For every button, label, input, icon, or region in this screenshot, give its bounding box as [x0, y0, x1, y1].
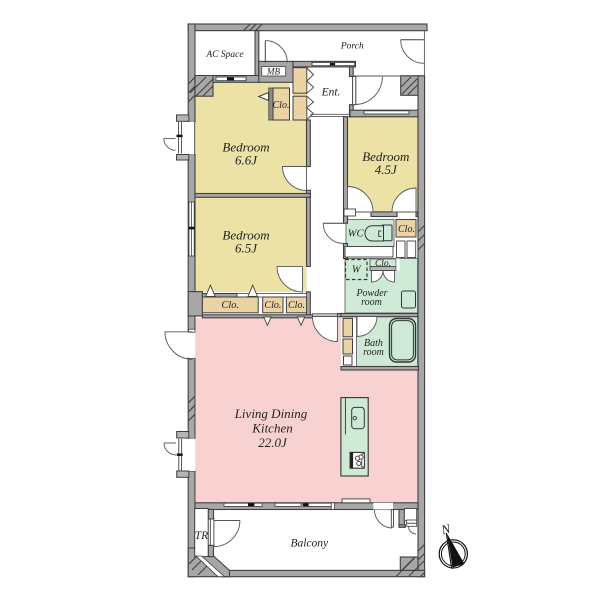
svg-text:Clo.: Clo. [398, 224, 415, 235]
svg-text:Clo.: Clo. [375, 259, 391, 269]
svg-text:22.0J: 22.0J [258, 435, 288, 450]
svg-text:room: room [361, 297, 382, 308]
svg-text:Ent.: Ent. [321, 87, 341, 99]
svg-text:Living Dining: Living Dining [234, 406, 308, 421]
svg-text:6.5J: 6.5J [235, 241, 258, 256]
svg-text:Clo.: Clo. [221, 300, 239, 311]
svg-text:WC: WC [348, 228, 365, 239]
svg-text:Clo.: Clo. [264, 300, 281, 311]
svg-text:TR: TR [195, 530, 208, 542]
svg-text:AC Space: AC Space [205, 50, 243, 60]
svg-text:Clo.: Clo. [273, 100, 290, 111]
svg-text:4.5J: 4.5J [375, 162, 398, 177]
svg-text:Porch: Porch [340, 42, 364, 52]
svg-text:Balcony: Balcony [290, 538, 329, 550]
svg-text:MB: MB [266, 67, 280, 77]
svg-text:6.6J: 6.6J [235, 152, 258, 167]
svg-text:Kitchen: Kitchen [251, 420, 292, 435]
svg-text:room: room [363, 347, 384, 358]
svg-text:Clo.: Clo. [288, 300, 305, 311]
svg-text:W: W [352, 265, 362, 276]
